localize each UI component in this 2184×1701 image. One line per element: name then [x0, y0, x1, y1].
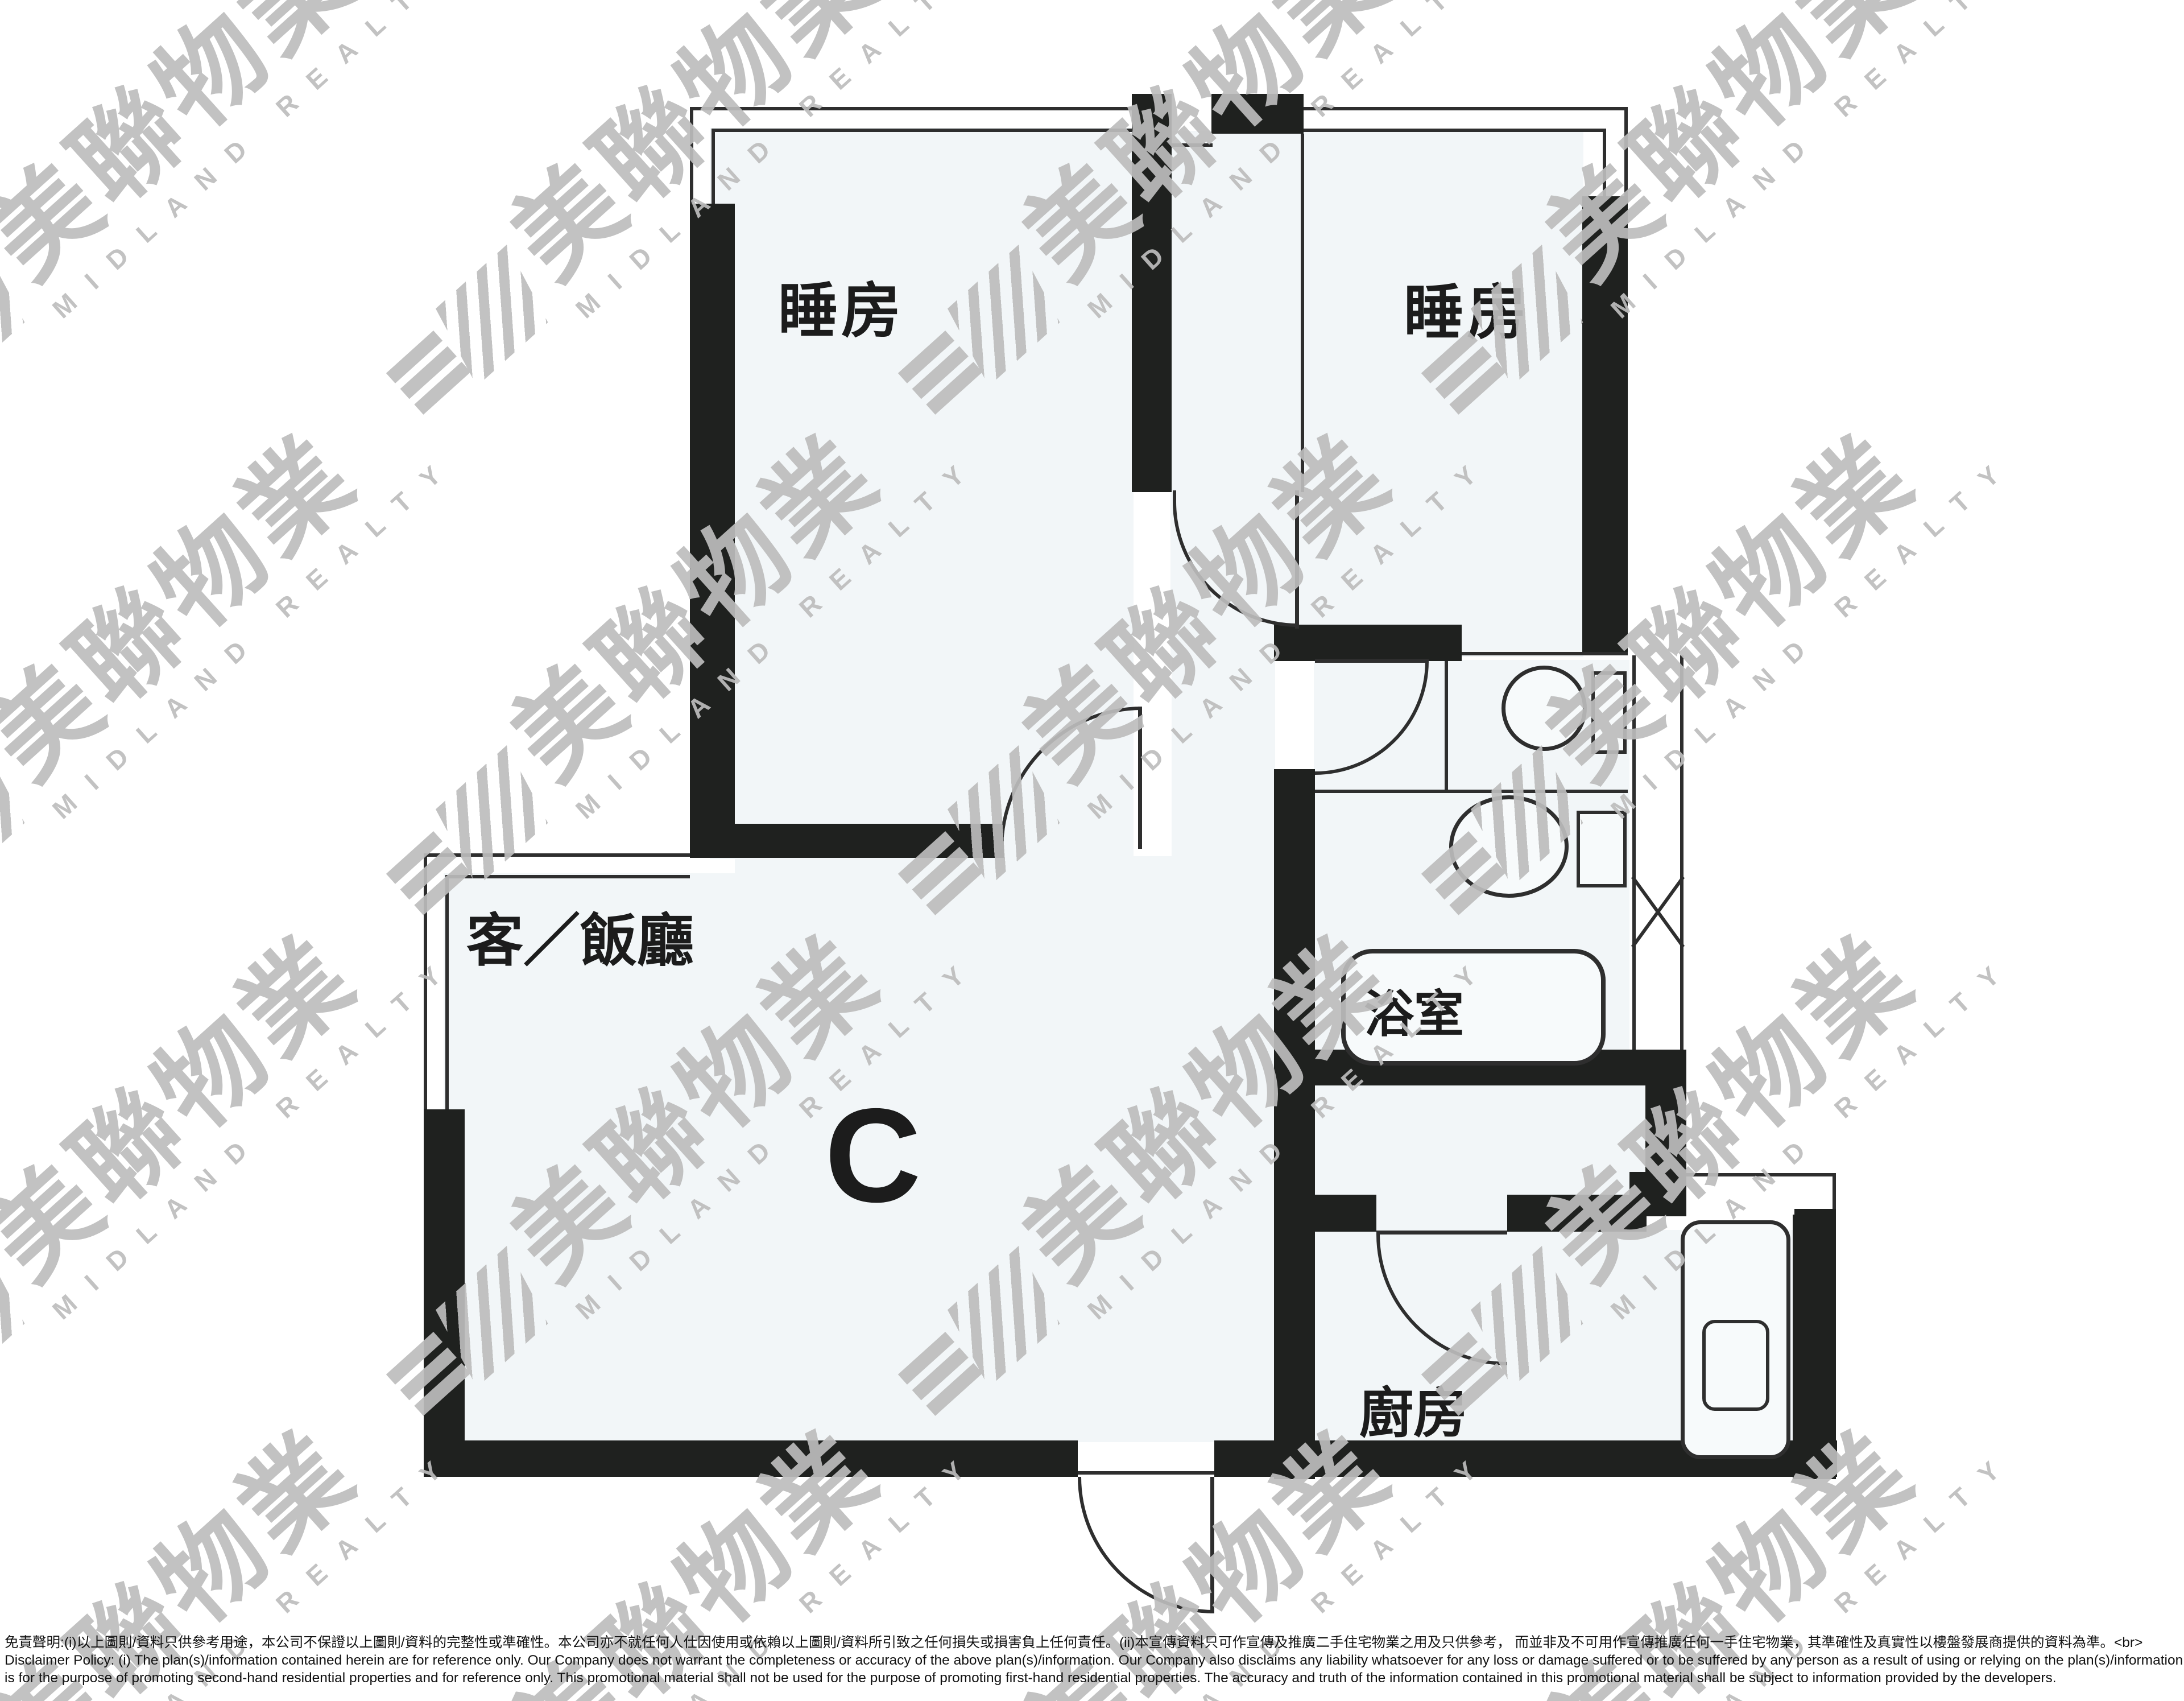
wall-top-middle-stub	[1211, 94, 1304, 134]
partition-bathroom-horizontal	[1315, 790, 1628, 793]
watermark-cjk-text: 美聯物業	[0, 862, 438, 1298]
door-leaf-bedroom1	[1138, 707, 1142, 849]
midland-watermark: 美聯物業 MIDLAND REALTY	[0, 0, 461, 446]
kitchen-sink	[1702, 1320, 1769, 1411]
wall-kitchen-top-left	[1315, 1195, 1376, 1232]
door-leaf-entrance	[1210, 1477, 1214, 1613]
disclaimer-block: 免責聲明:(i)以上圖則/資料只供參考用途，本公司不保證以上圖則/資料的完整性或…	[5, 1634, 2182, 1687]
wall-bedroom2-right	[1582, 196, 1628, 655]
wall-kitchen-right	[1793, 1215, 1836, 1479]
partition-bedroom2-left	[1301, 134, 1304, 492]
bathroom-label: 浴室	[1364, 974, 1464, 1046]
floor-plan-page: 睡房 睡房 客／飯廳 浴室 廚房 C 美聯物業 MIDLAND REALTY 美…	[0, 0, 2184, 1701]
midland-logo-icon	[0, 752, 32, 926]
wall-kitchen-top-right	[1507, 1195, 1647, 1232]
midland-logo-icon	[0, 251, 32, 426]
window-line-bedroom2-inner	[1302, 129, 1606, 196]
corridor-floor	[735, 856, 1275, 875]
window-line-bedroom1-inner	[712, 129, 1132, 205]
cistern	[1591, 671, 1627, 754]
watermark-latin-text: MIDLAND REALTY	[48, 0, 461, 323]
kitchen-label: 廚房	[1359, 1370, 1467, 1448]
door-leaf-kitchen	[1376, 1231, 1507, 1235]
watermark-latin-text: MIDLAND REALTY	[48, 447, 461, 823]
toilet-bowl	[1449, 795, 1569, 898]
partition-bathroom-vertical	[1445, 661, 1448, 793]
wall-kitchen-step-stub	[1629, 1172, 1669, 1215]
toilet-side-unit	[1577, 811, 1627, 887]
unit-label: C	[825, 1078, 921, 1232]
entrance-threshold	[1078, 1471, 1214, 1475]
wall-bedroom1-right	[1132, 94, 1172, 492]
midland-logo-stripes	[0, 745, 24, 887]
midland-logo-stripes	[436, 245, 548, 386]
duct-shaft-lines	[1632, 655, 1683, 1050]
bedroom1-label: 睡房	[778, 263, 904, 349]
midland-logo-stripes	[0, 1246, 24, 1388]
vent-shaft	[1632, 876, 1683, 947]
midland-watermark: 美聯物業 MIDLAND REALTY	[0, 362, 461, 947]
outline-top-middle	[1172, 143, 1213, 147]
wall-kitchen-step-corner	[1794, 1209, 1836, 1237]
disclaimer-line-zh: 免責聲明:(i)以上圖則/資料只供參考用途，本公司不保證以上圖則/資料的完整性或…	[5, 1634, 2182, 1652]
watermark-cjk-text: 美聯物業	[0, 362, 438, 797]
wall-bedroom2-bottom	[1274, 625, 1462, 661]
wall-bedroom1-left	[690, 204, 735, 858]
door-leaf-bathroom	[1315, 659, 1429, 663]
midland-logo-icon	[376, 251, 556, 426]
midland-logo-stripes	[0, 245, 24, 386]
watermark-cjk-text: 美聯物業	[0, 0, 438, 296]
bedroom2-label: 睡房	[1404, 265, 1530, 351]
midland-watermark: 美聯物業 MIDLAND REALTY	[0, 862, 461, 1447]
watermark-latin-text: MIDLAND REALTY	[48, 948, 461, 1324]
wall-living-right	[1274, 1085, 1315, 1479]
midland-logo-icon	[0, 1253, 32, 1427]
wall-bathroom-left	[1274, 769, 1315, 1085]
living-dining-label: 客／飯廳	[466, 894, 694, 977]
watermark-latin-text: MIDLAND REALTY	[1606, 0, 2020, 323]
partition-bedroom2-bottom	[1462, 652, 1628, 655]
hall-floor	[1172, 657, 1275, 875]
wall-bottom-left	[424, 1440, 1078, 1477]
door-leaf-bedroom2	[1295, 490, 1299, 629]
disclaimer-line-en-2: is for the purpose of promoting second-h…	[5, 1669, 2182, 1687]
disclaimer-line-en-1: Disclaimer Policy: (i) The plan(s)/infor…	[5, 1652, 2182, 1669]
basin	[1501, 666, 1587, 751]
wall-living-left	[424, 1109, 465, 1477]
door-arc-entrance	[1078, 1477, 1214, 1613]
wall-bedroom1-bottom	[735, 824, 1004, 858]
